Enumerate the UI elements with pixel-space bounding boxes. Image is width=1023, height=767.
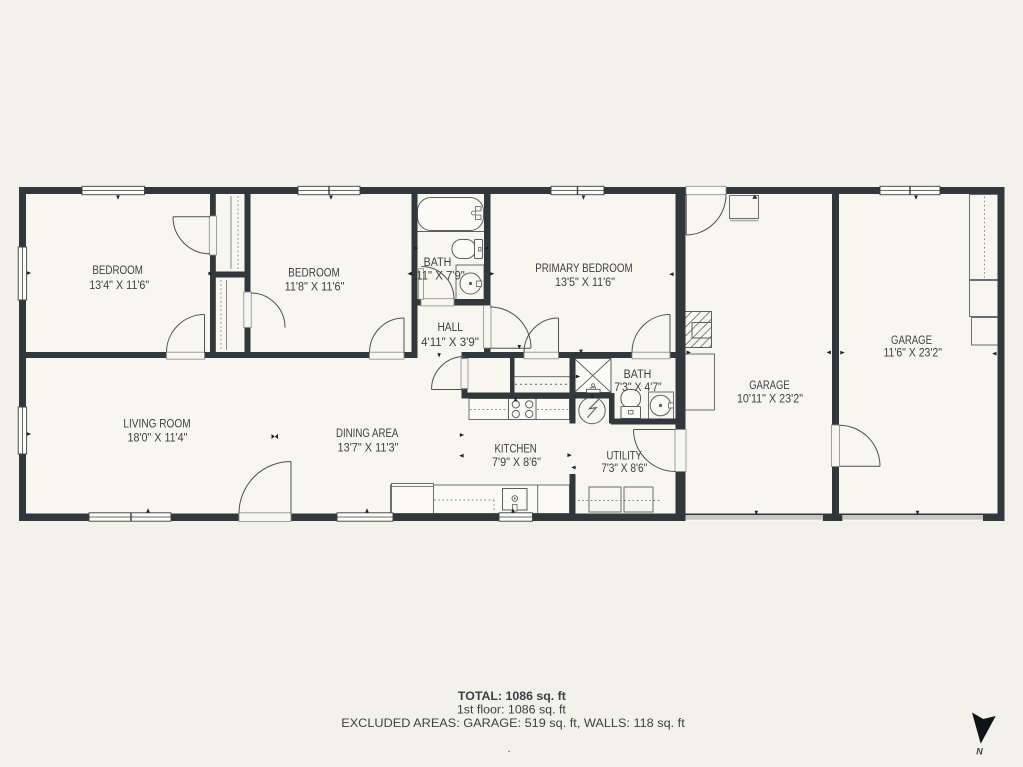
svg-text:13'4" X 11'6": 13'4" X 11'6" — [89, 279, 149, 292]
svg-text:1st floor: 1086 sq. ft: 1st floor: 1086 sq. ft — [457, 703, 567, 717]
svg-text:KITCHEN: KITCHEN — [495, 443, 537, 456]
svg-text:TOTAL: 1086 sq. ft: TOTAL: 1086 sq. ft — [458, 689, 566, 703]
svg-text:EXCLUDED AREAS: GARAGE: 519 sq: EXCLUDED AREAS: GARAGE: 519 sq. ft, WALL… — [341, 716, 685, 730]
svg-text:PRIMARY BEDROOM: PRIMARY BEDROOM — [535, 262, 632, 275]
svg-text:13'5" X 11'6": 13'5" X 11'6" — [555, 276, 615, 289]
svg-text:BEDROOM: BEDROOM — [92, 264, 143, 277]
svg-text:7'9" X 8'6": 7'9" X 8'6" — [492, 456, 541, 469]
svg-text:GARAGE: GARAGE — [749, 379, 790, 392]
svg-text:7'3" X 8'6": 7'3" X 8'6" — [601, 462, 647, 475]
svg-text:HALL: HALL — [437, 321, 463, 334]
svg-text:11'6" X 23'2": 11'6" X 23'2" — [883, 347, 942, 360]
svg-text:.: . — [507, 743, 510, 755]
svg-text:7'3" X 4'7": 7'3" X 4'7" — [614, 381, 662, 394]
svg-text:DINING AREA: DINING AREA — [336, 427, 399, 440]
svg-text:18'0" X 11'4": 18'0" X 11'4" — [128, 432, 188, 445]
svg-text:4'11" X 3'9": 4'11" X 3'9" — [421, 336, 479, 349]
svg-text:BEDROOM: BEDROOM — [288, 266, 340, 279]
svg-text:LIVING ROOM: LIVING ROOM — [123, 418, 190, 431]
svg-text:GARAGE: GARAGE — [891, 334, 932, 347]
svg-text:N: N — [976, 747, 983, 757]
svg-text:13'7" X 11'3": 13'7" X 11'3" — [338, 442, 399, 455]
svg-text:UTILITY: UTILITY — [607, 450, 643, 463]
svg-text:10'11" X 23'2": 10'11" X 23'2" — [737, 392, 803, 405]
svg-text:11'8" X 11'6": 11'8" X 11'6" — [285, 280, 345, 293]
svg-text:BATH: BATH — [624, 368, 652, 381]
